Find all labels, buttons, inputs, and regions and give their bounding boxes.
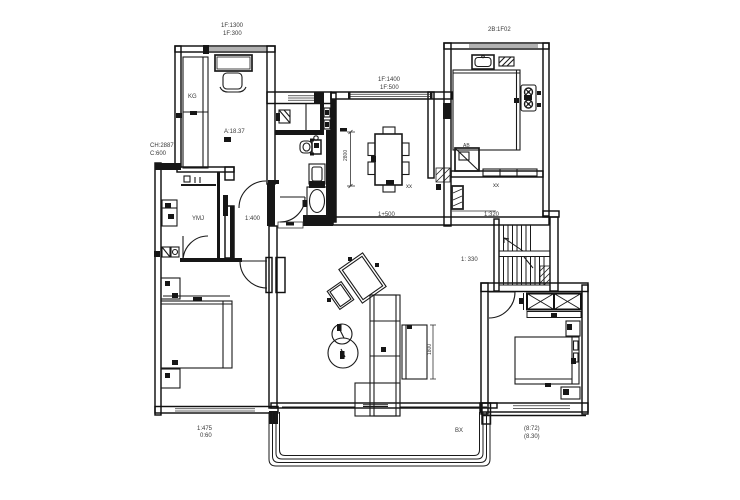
svg-text:AB: AB [463, 143, 470, 149]
svg-text:1F:1300: 1F:1300 [221, 23, 244, 29]
svg-text:BX: BX [455, 428, 463, 434]
svg-text:1F:1400: 1F:1400 [378, 77, 401, 83]
svg-text:(8.30): (8.30) [524, 434, 540, 440]
svg-text:KG: KG [188, 94, 197, 100]
svg-text:2800: 2800 [343, 150, 349, 161]
svg-text:xx: xx [493, 183, 499, 189]
svg-text:CH:2887: CH:2887 [150, 143, 174, 149]
svg-text:0:60: 0:60 [200, 433, 212, 439]
svg-text:YMJ: YMJ [192, 216, 204, 222]
svg-text:C:600: C:600 [150, 151, 167, 157]
svg-text:1F:300: 1F:300 [223, 31, 242, 37]
svg-text:1:400: 1:400 [245, 216, 261, 222]
svg-text:A:18.37: A:18.37 [224, 129, 245, 135]
svg-text:1F:500: 1F:500 [380, 85, 399, 91]
svg-text:2B:1F02: 2B:1F02 [488, 27, 511, 33]
svg-text:1+500: 1+500 [378, 212, 396, 218]
svg-text:1:475: 1:475 [197, 426, 213, 432]
svg-text:1: 330: 1: 330 [461, 257, 478, 263]
svg-text:(8:72): (8:72) [524, 426, 540, 432]
svg-text:1:320: 1:320 [484, 212, 500, 218]
svg-text:1800: 1800 [427, 344, 433, 355]
svg-text:xx: xx [406, 184, 412, 190]
